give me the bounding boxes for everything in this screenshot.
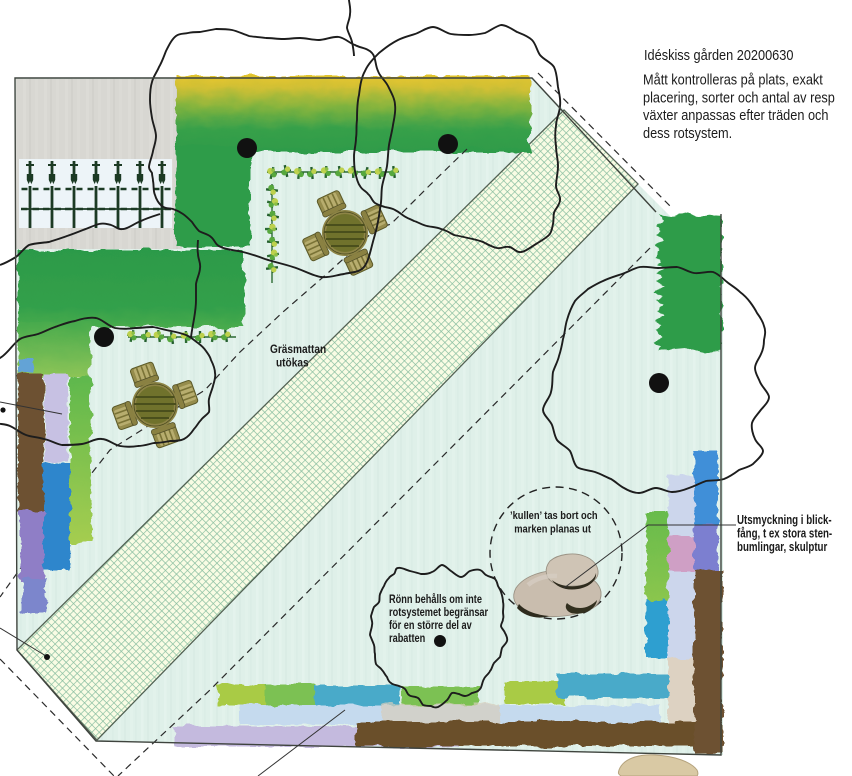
svg-text:Gräsmattan: Gräsmattan: [270, 343, 326, 356]
svg-text:utökas: utökas: [276, 357, 309, 370]
svg-text:Utsmyckning i blick- fång, t e: Utsmyckning i blick- fång, t ex stora st…: [737, 514, 835, 554]
svg-text:’kullen’ tas bort och marken p: ’kullen’ tas bort och marken planas ut: [510, 510, 600, 535]
svg-text:Idéskiss gården 20200630: Idéskiss gården 20200630: [644, 46, 794, 63]
